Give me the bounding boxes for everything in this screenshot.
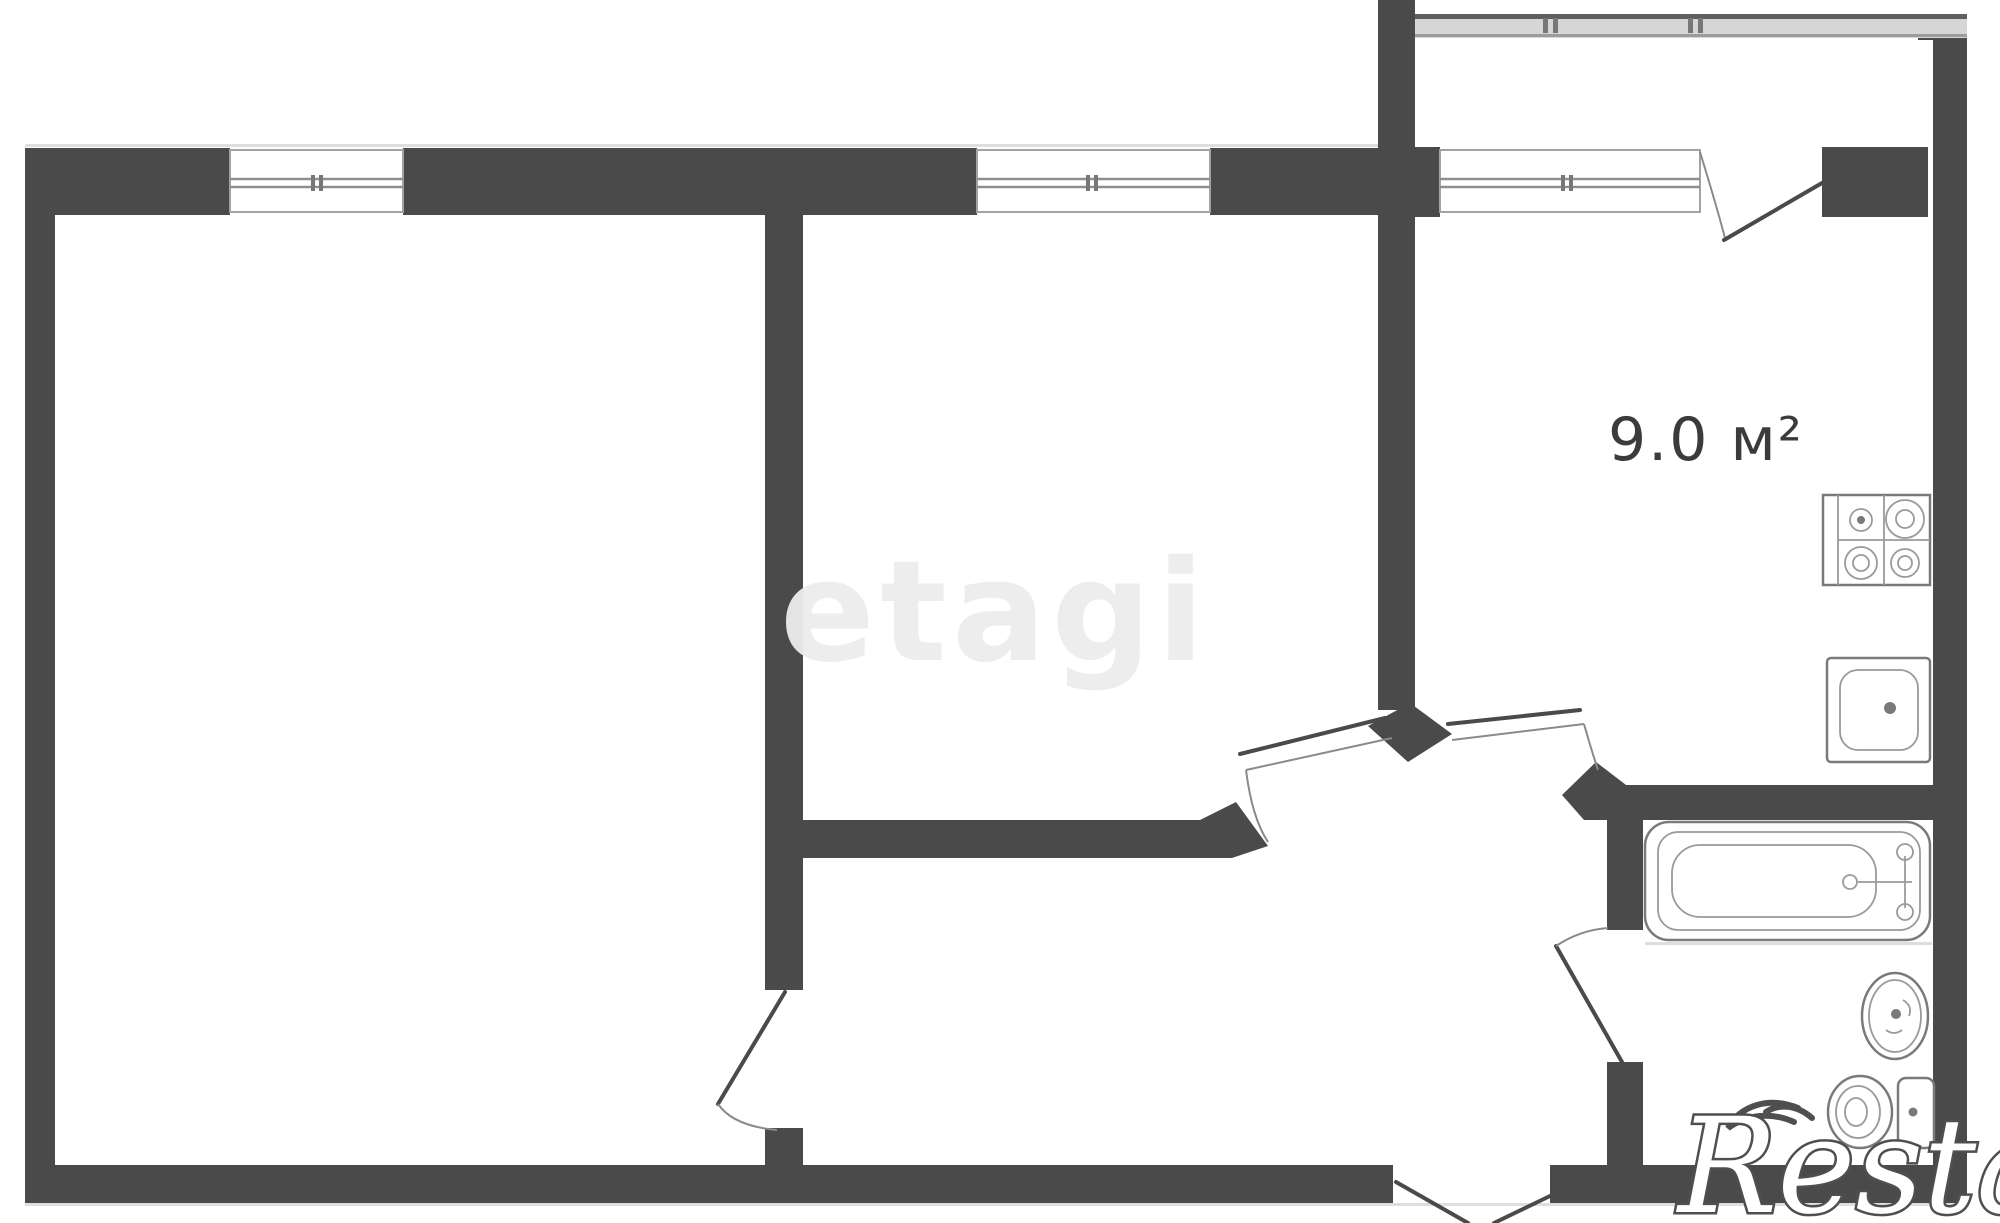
kitchen-divider-wall: [1378, 0, 1415, 710]
door-swing-icon: [1240, 718, 1385, 754]
washbasin-icon: [1862, 973, 1928, 1059]
window-tick: [1569, 175, 1573, 191]
washbasin-drain: [1891, 1009, 1901, 1019]
door-arc-icon: [1584, 724, 1598, 770]
balcony-rail-icon: [1415, 14, 1967, 38]
bathtub-icon: [1645, 822, 1930, 940]
etagi-watermark: etagi: [780, 531, 1210, 694]
bathtub-shadow: [1645, 942, 1932, 945]
hall-door-pivot-block: [1368, 703, 1452, 762]
door-swing-icon: [1556, 946, 1622, 1062]
hall-door-left: [1240, 718, 1392, 842]
window-tick: [319, 175, 323, 191]
hall-door-right: [1448, 710, 1598, 770]
bottom-wall-shadow: [25, 1203, 1967, 1206]
door-swing-icon: [1724, 183, 1822, 240]
right-wall: [1933, 20, 1967, 1203]
top-wall-left: [25, 148, 230, 215]
entrance-door: [1396, 1182, 1550, 1223]
door-leaf-edge: [1452, 724, 1584, 740]
window-tick: [1561, 175, 1565, 191]
hallway-wall: [800, 820, 1205, 858]
door-leaf-edge: [1246, 738, 1392, 770]
window-icon: [230, 150, 403, 212]
kitchen-wall-catch-block: [1562, 762, 1630, 820]
balcony-rail-tick: [1698, 18, 1703, 33]
sink-outer: [1827, 658, 1930, 762]
stove-icon: [1823, 495, 1930, 585]
door-arc-icon: [1700, 152, 1725, 238]
bathroom-door: [1556, 928, 1622, 1062]
restate-logo: Restate: [1676, 1090, 2000, 1223]
door-swing-icon: [718, 992, 785, 1104]
door-arc-icon: [718, 1104, 777, 1130]
floor-plan: 9.0 м² etagi Restate: [0, 0, 2000, 1223]
balcony-rail-bottom-edge: [1415, 34, 1967, 37]
balcony-rail-tick: [1553, 18, 1558, 33]
top-wall-shadow: [25, 144, 1415, 147]
bathtub-outer: [1645, 822, 1930, 940]
kitchen-sink-icon: [1827, 658, 1930, 762]
window-room2: [977, 150, 1210, 212]
window-tick: [1086, 175, 1090, 191]
bathroom-wall-lower: [1607, 1062, 1643, 1168]
balcony-jamb-right: [1822, 147, 1928, 217]
door-swing-icon: [1396, 1182, 1468, 1223]
balcony-door: [1700, 152, 1822, 240]
sink-drain: [1884, 702, 1896, 714]
bottom-wall-left: [25, 1165, 1393, 1203]
window-room1: [230, 150, 403, 212]
window-balcony: [1440, 150, 1700, 212]
top-wall-middle: [403, 148, 977, 215]
bathroom-wall-upper: [1607, 813, 1643, 930]
balcony-rail-tick: [1543, 18, 1548, 33]
window-icon: [977, 150, 1210, 212]
door-swing-icon: [1494, 1196, 1550, 1223]
restate-watermark-text: Restate: [1676, 1090, 2000, 1223]
kitchen-area-label: 9.0 м²: [1608, 405, 1804, 475]
kitchen-bathroom-wall: [1623, 785, 1967, 820]
balcony-rail-tick: [1688, 18, 1693, 33]
window-tick: [311, 175, 315, 191]
door-swing-icon: [1448, 710, 1580, 724]
hallway-wall-tip: [1200, 802, 1268, 858]
room-divider-stub: [765, 1128, 803, 1168]
window-tick: [1094, 175, 1098, 191]
room1-door: [718, 992, 785, 1130]
door-arc-icon: [1556, 928, 1608, 946]
balcony-jamb-left: [1415, 147, 1440, 217]
left-wall: [25, 148, 55, 1200]
